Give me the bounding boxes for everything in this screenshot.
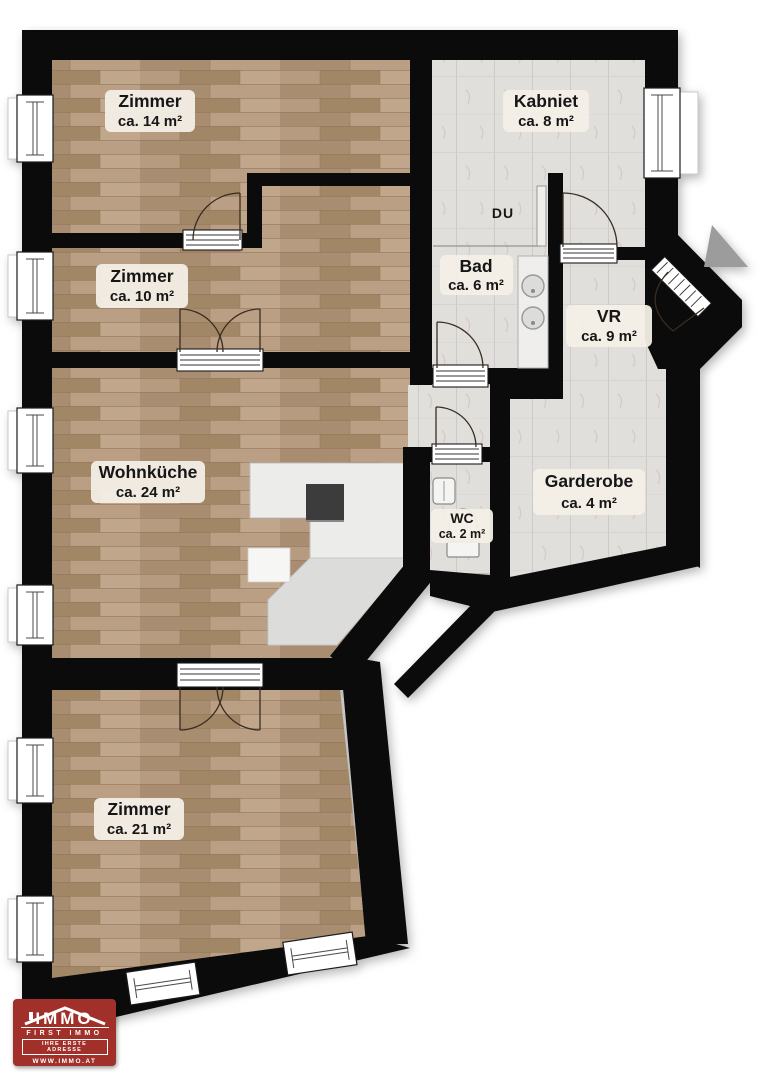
label-du: DU [492,205,514,221]
window [8,896,53,962]
svg-text:DU: DU [492,205,514,221]
floor-plan-page: Zimmer ca. 14 m² Kabniet ca. 8 m² Zimmer… [0,0,764,1080]
window [8,585,53,645]
svg-text:Bad: Bad [459,256,492,276]
label-garderobe: Garderobe ca. 4 m² [533,469,645,515]
logo-tagline: IHRE ERSTE ADRESSE [22,1039,108,1055]
window [8,738,53,803]
hall-floor [408,385,492,448]
washbasin-icon [522,307,544,329]
svg-text:VR: VR [597,306,622,326]
svg-text:ca. 21 m²: ca. 21 m² [107,821,171,838]
logo-subtitle: FIRST IMMO [21,1027,109,1037]
window [8,252,53,320]
label-vr: VR ca. 9 m² [566,305,652,347]
svg-text:ca. 2 m²: ca. 2 m² [439,527,486,541]
svg-text:ca. 9 m²: ca. 9 m² [581,328,637,345]
label-zimmer21: Zimmer ca. 21 m² [94,798,184,840]
svg-text:Zimmer: Zimmer [107,799,170,819]
svg-text:ca. 10 m²: ca. 10 m² [110,288,174,305]
svg-text:ca. 4 m²: ca. 4 m² [561,495,617,512]
svg-text:Garderobe: Garderobe [545,471,634,491]
washbasin-icon [522,275,544,297]
svg-text:ca. 6 m²: ca. 6 m² [448,277,504,294]
window [8,95,53,162]
label-zimmer14: Zimmer ca. 14 m² [105,90,195,132]
toilet-tank [447,542,479,557]
window [8,408,53,473]
svg-text:Kabniet: Kabniet [514,91,578,111]
svg-text:WC: WC [450,510,473,526]
svg-text:ca. 14 m²: ca. 14 m² [118,113,182,130]
label-bad: Bad ca. 6 m² [440,255,513,295]
shower-glass [537,186,546,246]
first-immo-logo: IMMO FIRST IMMO IHRE ERSTE ADRESSE WWW.I… [13,999,116,1066]
stove [306,484,344,520]
svg-text:ca. 8 m²: ca. 8 m² [518,113,574,130]
entrance-arrow-icon [704,225,748,267]
svg-text:Zimmer: Zimmer [118,91,181,111]
svg-text:Wohnküche: Wohnküche [99,462,198,482]
floor-plan-svg: Zimmer ca. 14 m² Kabniet ca. 8 m² Zimmer… [0,0,764,1080]
label-zimmer10: Zimmer ca. 10 m² [96,264,188,308]
logo-brand: IMMO [35,1012,93,1025]
label-kabniet: Kabniet ca. 8 m² [503,90,589,132]
logo-website: WWW.IMMO.AT [32,1058,96,1065]
window [644,88,698,178]
svg-text:Zimmer: Zimmer [110,266,173,286]
label-wc: WC ca. 2 m² [431,509,493,543]
label-wohnkueche: Wohnküche ca. 24 m² [91,461,205,503]
svg-text:ca. 24 m²: ca. 24 m² [116,484,180,501]
